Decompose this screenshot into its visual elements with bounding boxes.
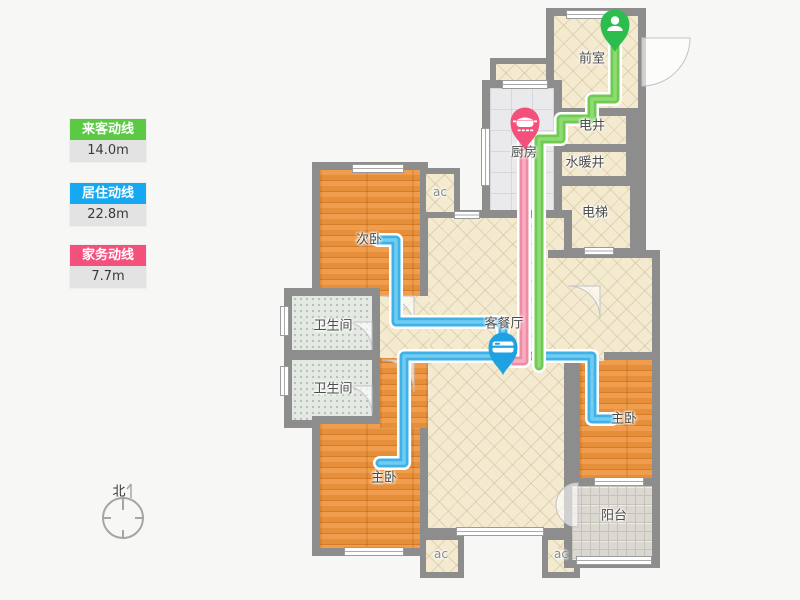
floor-plan: 前室 电井 水暖井 电梯 厨房 次卧 卫生间 卫生间 客餐厅 主卧 主卧 阳台 … [0,0,800,600]
pin-body [511,108,540,151]
label-ac-bottom-right: ac [554,547,568,561]
legend-visitor[interactable]: 来客动线 14.0m [70,119,146,162]
label-living-dining: 客餐厅 [484,313,523,332]
legend-housework[interactable]: 家务动线 7.7m [70,245,146,288]
label-plumbing-shaft: 水暖井 [565,152,604,171]
legend-housework-value: 7.7m [70,266,146,288]
legend-visitor-label: 来客动线 [70,119,146,140]
label-ac-bottom-left: ac [434,547,448,561]
label-bathroom-2: 卫生间 [313,378,352,397]
compass-north-label: 北 [112,481,125,500]
bed-icon [493,342,514,353]
label-ac-top: ac [433,185,447,199]
kitchen-pin[interactable] [505,106,545,158]
label-bathroom-1: 卫生间 [313,315,352,334]
label-bedroom-second: 次卧 [356,229,382,248]
legend-resident-value: 22.8m [70,204,146,226]
legend-resident-label: 居住动线 [70,183,146,204]
label-elevator: 电梯 [582,202,608,221]
legend-housework-label: 家务动线 [70,245,146,266]
pin-body [489,333,518,376]
label-master-right: 主卧 [611,408,637,427]
label-balcony: 阳台 [601,505,627,524]
legend-visitor-value: 14.0m [70,140,146,162]
visitor-start-pin[interactable] [595,8,635,60]
living-pin[interactable] [483,331,523,383]
label-master-left: 主卧 [371,467,397,486]
movement-lines-layer [0,0,800,600]
legend-resident[interactable]: 居住动线 22.8m [70,183,146,226]
label-electrical-shaft: 电井 [579,115,605,134]
